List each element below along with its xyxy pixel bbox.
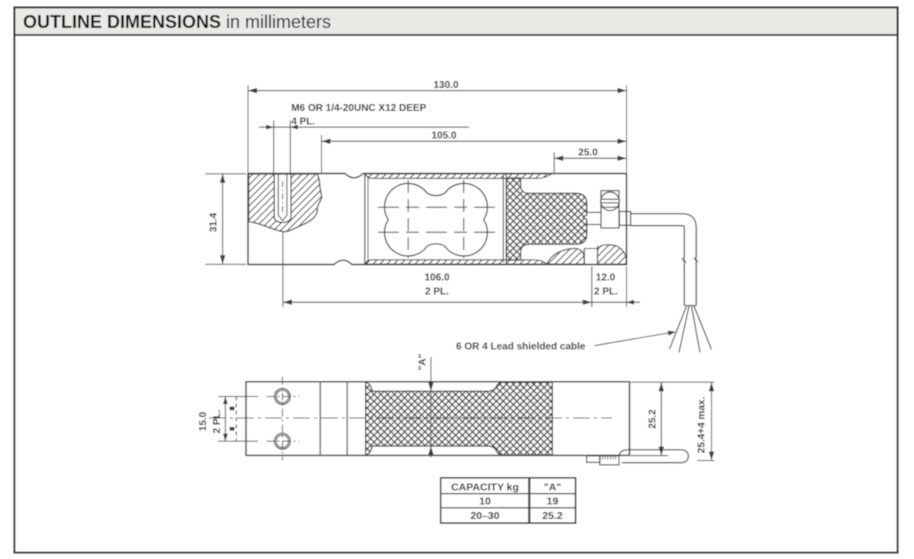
svg-text:19: 19 (547, 496, 559, 508)
svg-text:130.0: 130.0 (433, 80, 458, 91)
svg-text:2 PL.: 2 PL. (425, 287, 449, 298)
svg-text:2 PL.: 2 PL. (212, 409, 223, 433)
svg-text:2 PL.: 2 PL. (594, 287, 618, 298)
svg-text:15.0: 15.0 (198, 411, 209, 431)
svg-text:106.0: 106.0 (424, 273, 449, 284)
svg-text:25.2: 25.2 (542, 510, 563, 522)
svg-text:10: 10 (479, 496, 491, 508)
svg-text:25.0: 25.0 (578, 147, 598, 158)
svg-text:12.0: 12.0 (596, 273, 616, 284)
svg-text:"A": "A" (418, 353, 429, 370)
svg-text:105.0: 105.0 (431, 131, 456, 142)
svg-text:25.2: 25.2 (648, 409, 659, 429)
svg-text:20–30: 20–30 (470, 510, 499, 522)
svg-text:"A": "A" (544, 481, 562, 493)
svg-text:CAPACITY kg: CAPACITY kg (451, 481, 519, 493)
svg-text:31.4: 31.4 (209, 212, 220, 232)
svg-text:M6 OR 1/4-20UNC X12 DEEP: M6 OR 1/4-20UNC X12 DEEP (291, 103, 426, 114)
svg-text:25.4+4 max.: 25.4+4 max. (697, 397, 708, 454)
svg-text:6 OR 4 Lead shielded cable: 6 OR 4 Lead shielded cable (456, 341, 586, 352)
svg-text:OUTLINE DIMENSIONS in millimet: OUTLINE DIMENSIONS in millimeters (23, 12, 331, 32)
